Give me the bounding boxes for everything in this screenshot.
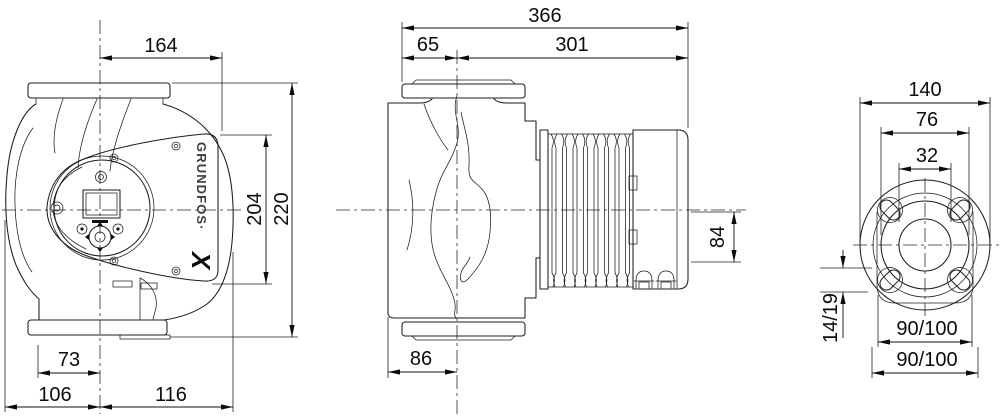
dim-front-left: 106: [38, 384, 71, 406]
dim-flange-bolt-span-inner: 90/100: [896, 318, 957, 340]
dim-flange-od: 140: [908, 79, 941, 101]
dim-flange-bore: 32: [916, 145, 938, 167]
dim-side-depth: 84: [707, 226, 729, 248]
dim-side-body: 86: [410, 348, 432, 370]
ok-navigation-pad: [85, 222, 115, 252]
front-control-panel: GRUNDFOS· X: [47, 134, 218, 289]
side-view: 366 65 301 86 84: [336, 5, 746, 414]
side-centerlines: [336, 50, 746, 414]
dim-side-left: 65: [417, 34, 439, 56]
display-screen: [83, 190, 120, 218]
flange-centerlines: [853, 178, 1000, 316]
panel-screws: [51, 142, 180, 275]
front-view: GRUNDFOS· X 164 204 220: [2, 20, 298, 414]
dim-side-right: 301: [555, 34, 588, 56]
dim-front-foot: 73: [58, 349, 80, 371]
dim-flange-bolt-span-outer: 90/100: [896, 349, 957, 371]
cable-glands: [634, 271, 676, 288]
dim-flange-slot: 14/19: [820, 293, 842, 343]
pump-dimensional-drawing: GRUNDFOS· X 164 204 220: [0, 0, 1000, 417]
flange-view: 140 76 32 14/19 90/100: [820, 79, 1000, 378]
grundfos-wordmark: GRUNDFOS·: [194, 142, 209, 231]
drawing-canvas: GRUNDFOS· X 164 204 220: [0, 0, 1000, 417]
dim-front-height-overall: 220: [271, 192, 293, 225]
dim-front-right: 116: [155, 384, 187, 406]
side-motor: [540, 130, 688, 289]
dim-side-overall: 366: [528, 5, 561, 27]
dim-flange-face: 76: [916, 109, 938, 131]
dim-front-width: 164: [144, 35, 177, 57]
grundfos-symbol-icon: X: [186, 250, 216, 271]
terminal-tab: [141, 283, 157, 289]
cooling-fins: [551, 134, 631, 287]
dim-front-height-inner: 204: [244, 192, 266, 225]
terminal-tab: [113, 281, 132, 287]
